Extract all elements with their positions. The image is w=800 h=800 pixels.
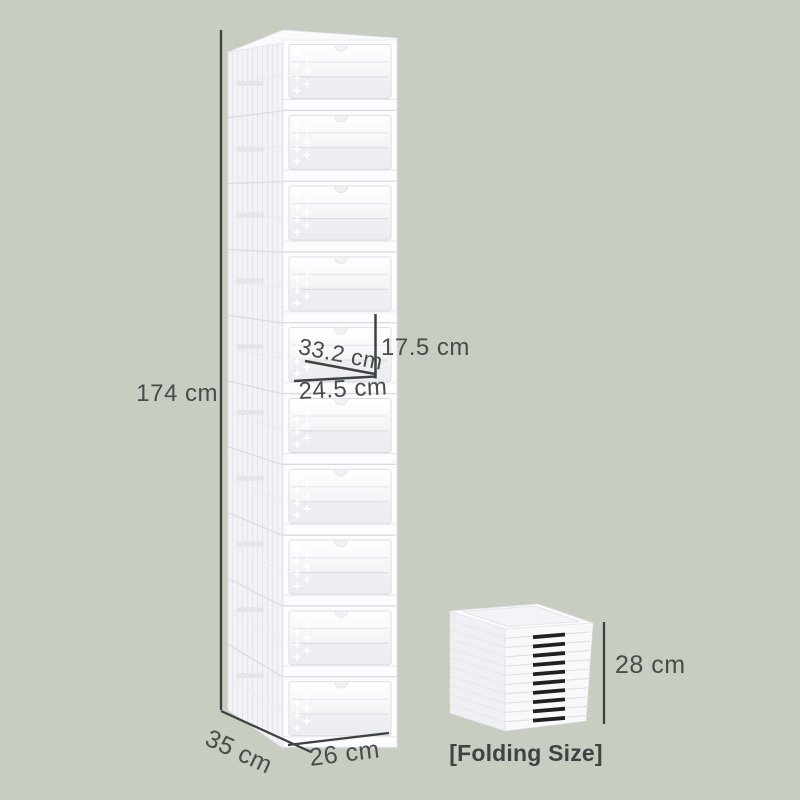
side-handle-slot [236,147,264,152]
storage-box-front [283,40,397,111]
side-handle-slot [236,278,264,283]
inner-width-label: 24.5 cm [298,375,388,404]
storage-box-front [283,606,397,677]
storage-box-front [283,677,397,748]
folded-height-label: 28 cm [615,653,686,678]
folded-handle-slot [533,690,565,693]
inner-height-label: 17.5 cm [381,336,470,360]
side-handle-slot [236,607,264,612]
side-handle-slot [236,673,264,678]
side-handle-slot [236,410,264,415]
side-handle-slot [236,213,264,218]
folded-handle-slot [533,635,565,638]
folding-size-label: [Folding Size] [426,742,626,765]
folded-handle-slot [533,672,565,675]
folded-handle-slot [533,644,565,647]
storage-box-front [283,252,397,323]
folded-stack [450,604,593,731]
side-handle-slot [236,81,264,86]
folded-handle-slot [533,718,565,721]
total-height-label: 174 cm [110,382,218,406]
folded-front-face [505,623,593,731]
side-handle-slot [236,344,264,349]
side-handle-slot [236,542,264,547]
folded-handle-slot [533,662,565,665]
folded-handle-slot [533,681,565,684]
storage-box-front [283,536,397,607]
folded-handle-slot [533,699,565,702]
side-handle-slot [236,476,264,481]
storage-box-front [283,182,397,253]
storage-box-front [283,465,397,536]
product-dimension-diagram: 174 cm 33.2 cm 17.5 cm 24.5 cm 35 cm 26 … [0,0,800,800]
storage-box-front [283,111,397,182]
folded-handle-slot [533,709,565,712]
folded-handle-slot [533,653,565,656]
